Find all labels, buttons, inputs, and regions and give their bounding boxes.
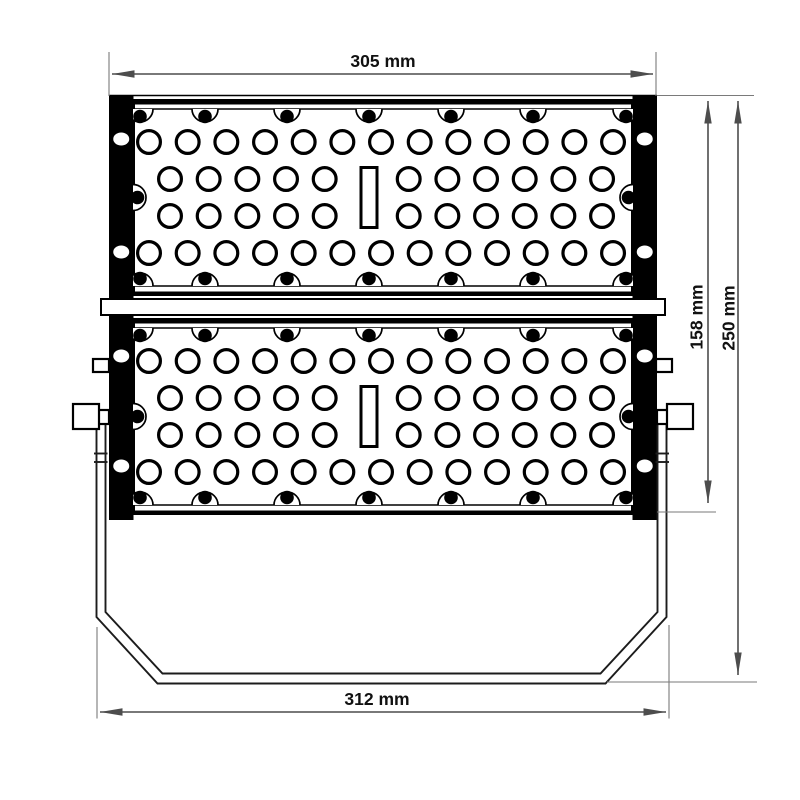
led-hole bbox=[370, 350, 393, 373]
rail-mounting-hole bbox=[113, 133, 129, 146]
rail-mounting-hole bbox=[637, 460, 653, 473]
led-hole bbox=[513, 205, 536, 228]
led-hole bbox=[236, 424, 259, 447]
led-hole bbox=[524, 350, 547, 373]
led-hole bbox=[552, 424, 575, 447]
screw-dot bbox=[444, 272, 458, 286]
led-hole bbox=[176, 350, 199, 373]
pivot-knob-left bbox=[73, 404, 99, 429]
led-hole bbox=[591, 387, 614, 410]
led-hole bbox=[313, 424, 336, 447]
screw-dot bbox=[526, 272, 540, 286]
led-hole bbox=[138, 461, 161, 484]
led-hole bbox=[475, 205, 498, 228]
clip-tab-left bbox=[93, 359, 109, 372]
module-bottom-bar bbox=[133, 292, 633, 297]
led-hole bbox=[552, 168, 575, 191]
screw-dot bbox=[444, 329, 458, 343]
led-hole bbox=[486, 131, 509, 154]
rail-mounting-hole bbox=[113, 246, 129, 259]
led-hole bbox=[513, 168, 536, 191]
wiring-slot bbox=[361, 168, 377, 228]
led-hole bbox=[215, 242, 238, 265]
led-hole bbox=[138, 350, 161, 373]
rail-mounting-hole bbox=[637, 350, 653, 363]
module-bottom-bar bbox=[133, 511, 633, 516]
screw-dot bbox=[362, 110, 376, 124]
led-hole bbox=[159, 387, 182, 410]
dimension-label-bottom-width: 312 mm bbox=[344, 689, 409, 709]
screw-dot bbox=[619, 110, 633, 124]
led-hole bbox=[602, 131, 625, 154]
led-hole bbox=[524, 461, 547, 484]
led-hole bbox=[313, 168, 336, 191]
dimension-label-overall-height: 250 mm bbox=[719, 285, 739, 350]
led-hole bbox=[236, 168, 259, 191]
center-divider-bar bbox=[101, 299, 665, 315]
led-hole bbox=[331, 242, 354, 265]
screw-dot bbox=[362, 491, 376, 505]
led-hole bbox=[486, 242, 509, 265]
floodlight-dimension-drawing: 305 mm 158 mm 250 mm 312 mm bbox=[0, 0, 800, 800]
led-hole bbox=[397, 424, 420, 447]
screw-dot bbox=[280, 272, 294, 286]
led-hole bbox=[408, 131, 431, 154]
fixture bbox=[73, 96, 693, 684]
led-hole bbox=[331, 131, 354, 154]
led-hole bbox=[563, 461, 586, 484]
screw-dot bbox=[526, 110, 540, 124]
screw-dot bbox=[133, 110, 147, 124]
led-hole bbox=[331, 461, 354, 484]
screw-dot bbox=[362, 272, 376, 286]
led-hole bbox=[331, 350, 354, 373]
led-hole bbox=[292, 350, 315, 373]
led-hole bbox=[138, 131, 161, 154]
led-hole bbox=[176, 242, 199, 265]
led-hole bbox=[176, 131, 199, 154]
led-hole bbox=[292, 242, 315, 265]
led-hole bbox=[486, 350, 509, 373]
led-hole bbox=[524, 242, 547, 265]
led-hole bbox=[292, 131, 315, 154]
led-hole bbox=[486, 461, 509, 484]
led-hole bbox=[513, 387, 536, 410]
dimension-top-width: 305 mm bbox=[109, 51, 656, 96]
led-hole bbox=[475, 387, 498, 410]
screw-dot bbox=[133, 329, 147, 343]
led-hole bbox=[159, 205, 182, 228]
rail-mounting-hole bbox=[113, 460, 129, 473]
screw-dot bbox=[619, 329, 633, 343]
led-hole bbox=[159, 168, 182, 191]
led-hole bbox=[275, 168, 298, 191]
led-hole bbox=[197, 205, 220, 228]
led-module-bottom bbox=[127, 318, 639, 515]
screw-dot bbox=[619, 491, 633, 505]
screw-dot bbox=[362, 329, 376, 343]
led-hole bbox=[513, 424, 536, 447]
led-hole bbox=[602, 350, 625, 373]
led-hole bbox=[447, 350, 470, 373]
led-hole bbox=[408, 461, 431, 484]
rail-mounting-hole bbox=[113, 350, 129, 363]
led-hole bbox=[275, 205, 298, 228]
pivot-knob-right bbox=[667, 404, 693, 429]
screw-dot bbox=[198, 272, 212, 286]
led-hole bbox=[370, 131, 393, 154]
led-hole bbox=[524, 131, 547, 154]
led-hole bbox=[138, 242, 161, 265]
led-hole bbox=[215, 131, 238, 154]
rail-mounting-hole bbox=[637, 133, 653, 146]
screw-dot bbox=[526, 329, 540, 343]
led-hole bbox=[436, 205, 459, 228]
rail-mounting-hole bbox=[637, 246, 653, 259]
screw-dot bbox=[198, 491, 212, 505]
led-hole bbox=[397, 168, 420, 191]
led-hole bbox=[408, 350, 431, 373]
screw-dot bbox=[444, 491, 458, 505]
screw-dot bbox=[444, 110, 458, 124]
dimension-bottom-width: 312 mm bbox=[97, 625, 669, 719]
led-hole bbox=[197, 387, 220, 410]
led-hole bbox=[475, 424, 498, 447]
led-hole bbox=[436, 168, 459, 191]
dimension-label-top-width: 305 mm bbox=[350, 51, 415, 71]
led-hole bbox=[552, 205, 575, 228]
led-hole bbox=[236, 205, 259, 228]
module-top-bar bbox=[133, 99, 633, 105]
screw-dot bbox=[133, 272, 147, 286]
led-hole bbox=[563, 242, 586, 265]
led-hole bbox=[370, 242, 393, 265]
led-hole bbox=[176, 461, 199, 484]
led-hole bbox=[370, 461, 393, 484]
drawing-canvas: 305 mm 158 mm 250 mm 312 mm bbox=[0, 0, 800, 800]
screw-dot bbox=[280, 491, 294, 505]
led-hole bbox=[397, 205, 420, 228]
led-hole bbox=[254, 131, 277, 154]
dimension-label-module-height: 158 mm bbox=[687, 284, 707, 349]
led-hole bbox=[292, 461, 315, 484]
led-hole bbox=[275, 424, 298, 447]
screw-dot bbox=[280, 329, 294, 343]
led-hole bbox=[236, 387, 259, 410]
led-hole bbox=[197, 168, 220, 191]
led-hole bbox=[447, 131, 470, 154]
clip-tab-right bbox=[656, 359, 672, 372]
wiring-slot bbox=[361, 387, 377, 447]
led-hole bbox=[447, 242, 470, 265]
led-hole bbox=[397, 387, 420, 410]
led-hole bbox=[602, 461, 625, 484]
led-hole bbox=[591, 205, 614, 228]
led-hole bbox=[254, 242, 277, 265]
led-hole bbox=[215, 350, 238, 373]
led-hole bbox=[215, 461, 238, 484]
led-hole bbox=[602, 242, 625, 265]
led-hole bbox=[591, 168, 614, 191]
led-hole bbox=[552, 387, 575, 410]
led-hole bbox=[591, 424, 614, 447]
screw-dot bbox=[619, 272, 633, 286]
screw-dot bbox=[198, 110, 212, 124]
screw-dot bbox=[526, 491, 540, 505]
screw-dot bbox=[198, 329, 212, 343]
module-top-bar bbox=[133, 318, 633, 324]
led-hole bbox=[436, 387, 459, 410]
led-hole bbox=[197, 424, 220, 447]
screw-dot bbox=[133, 491, 147, 505]
led-hole bbox=[313, 205, 336, 228]
led-hole bbox=[436, 424, 459, 447]
led-module-top bbox=[127, 99, 639, 296]
led-hole bbox=[159, 424, 182, 447]
led-hole bbox=[475, 168, 498, 191]
led-hole bbox=[275, 387, 298, 410]
screw-dot bbox=[280, 110, 294, 124]
led-hole bbox=[408, 242, 431, 265]
led-hole bbox=[313, 387, 336, 410]
led-hole bbox=[447, 461, 470, 484]
led-hole bbox=[254, 461, 277, 484]
led-hole bbox=[563, 131, 586, 154]
led-hole bbox=[254, 350, 277, 373]
led-hole bbox=[563, 350, 586, 373]
